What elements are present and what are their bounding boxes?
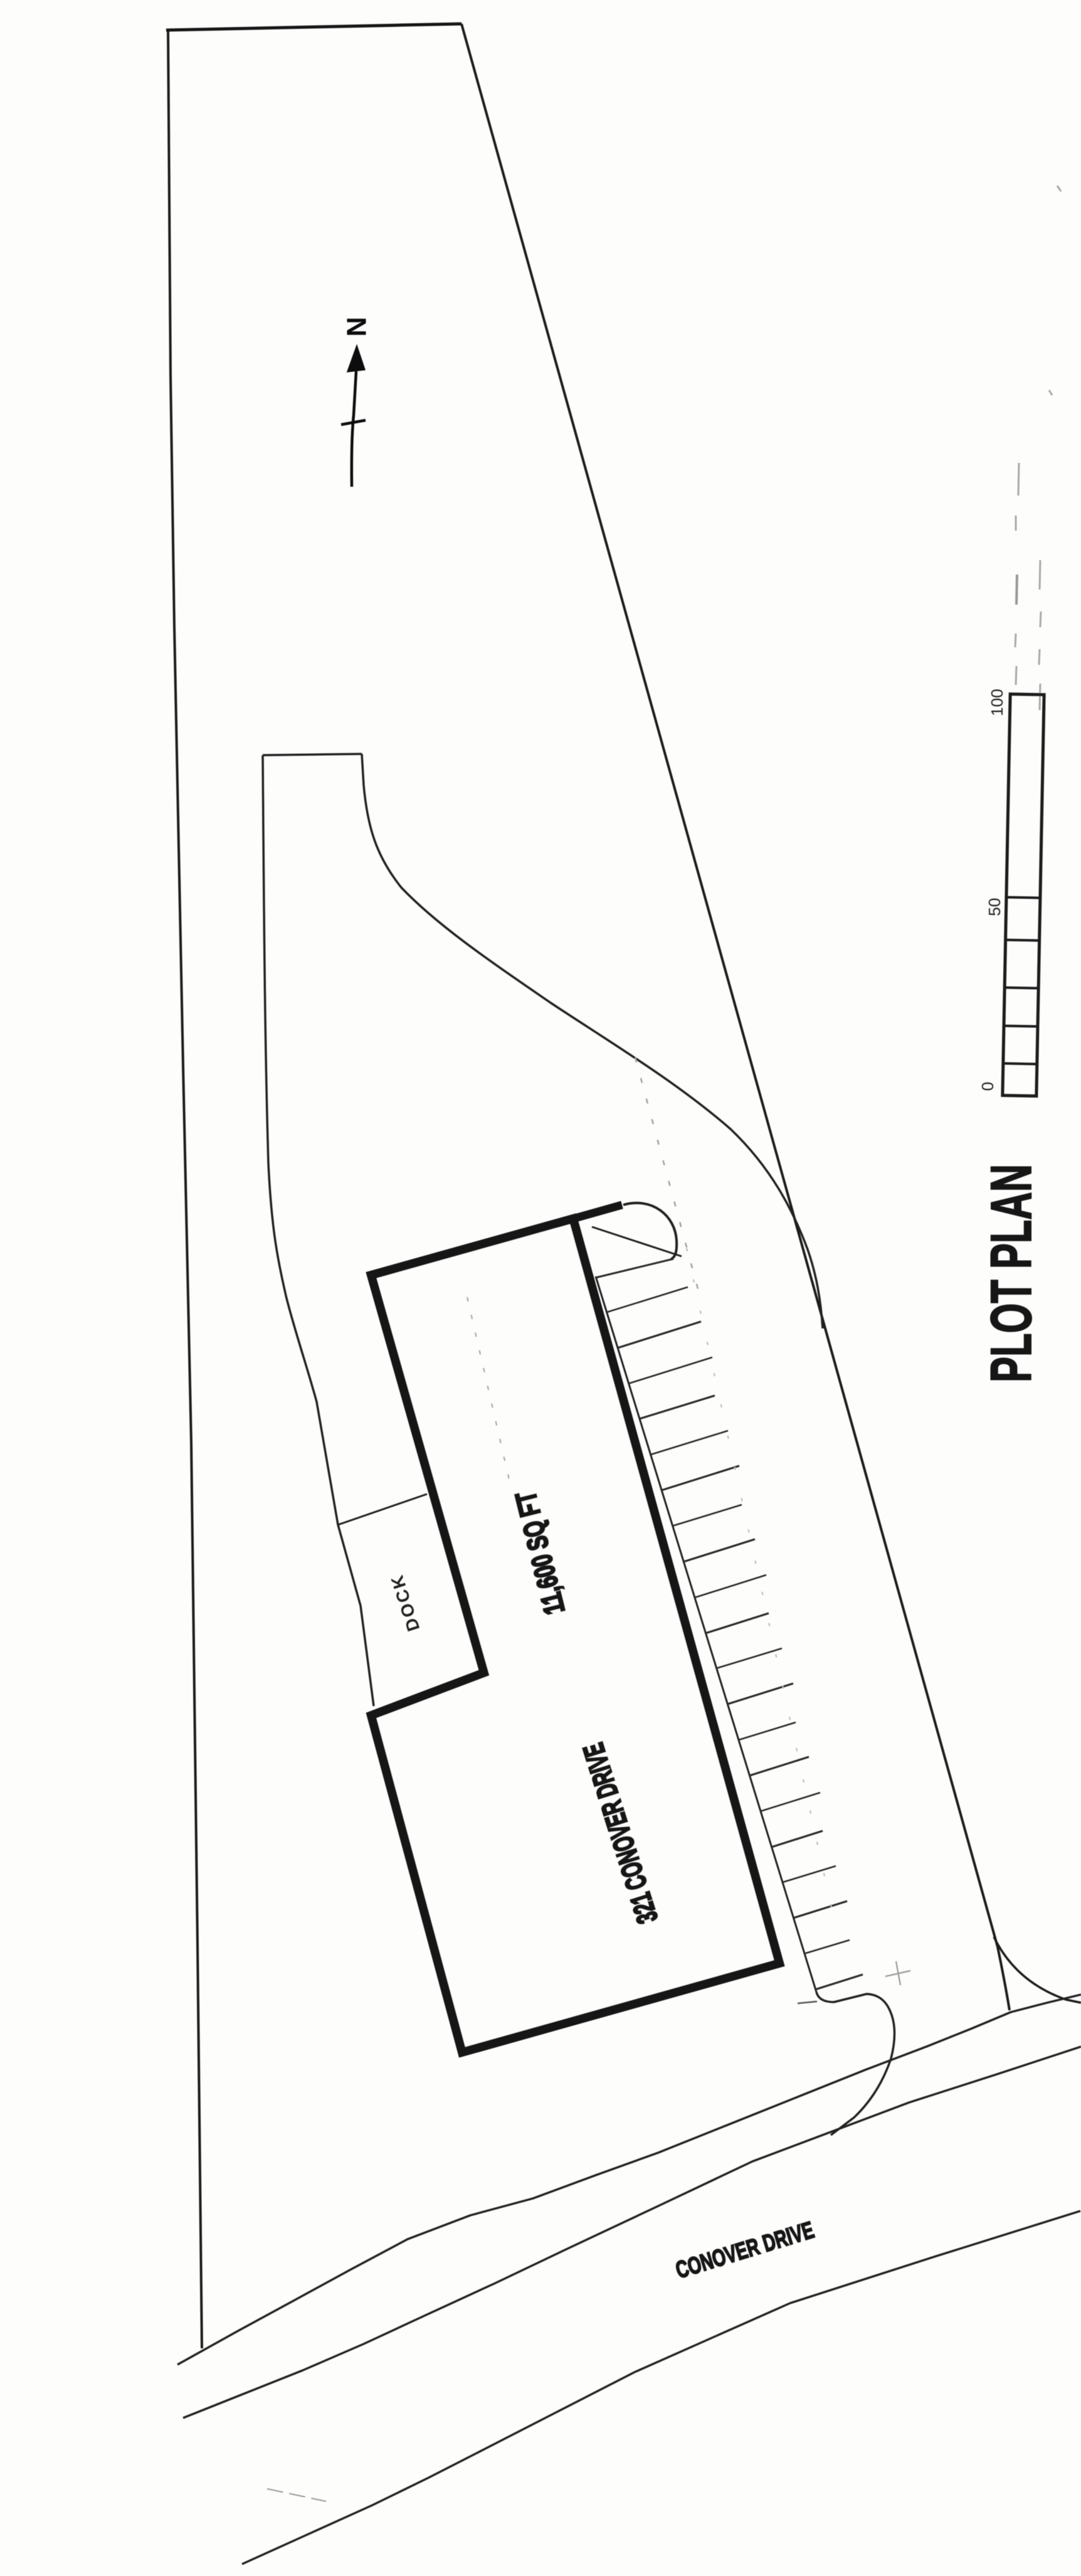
svg-text:PLOT PLAN: PLOT PLAN xyxy=(979,1164,1043,1382)
svg-text:100: 100 xyxy=(988,689,1006,716)
svg-text:N: N xyxy=(342,317,372,337)
svg-text:50: 50 xyxy=(985,898,1004,916)
svg-text:0: 0 xyxy=(978,1082,997,1091)
